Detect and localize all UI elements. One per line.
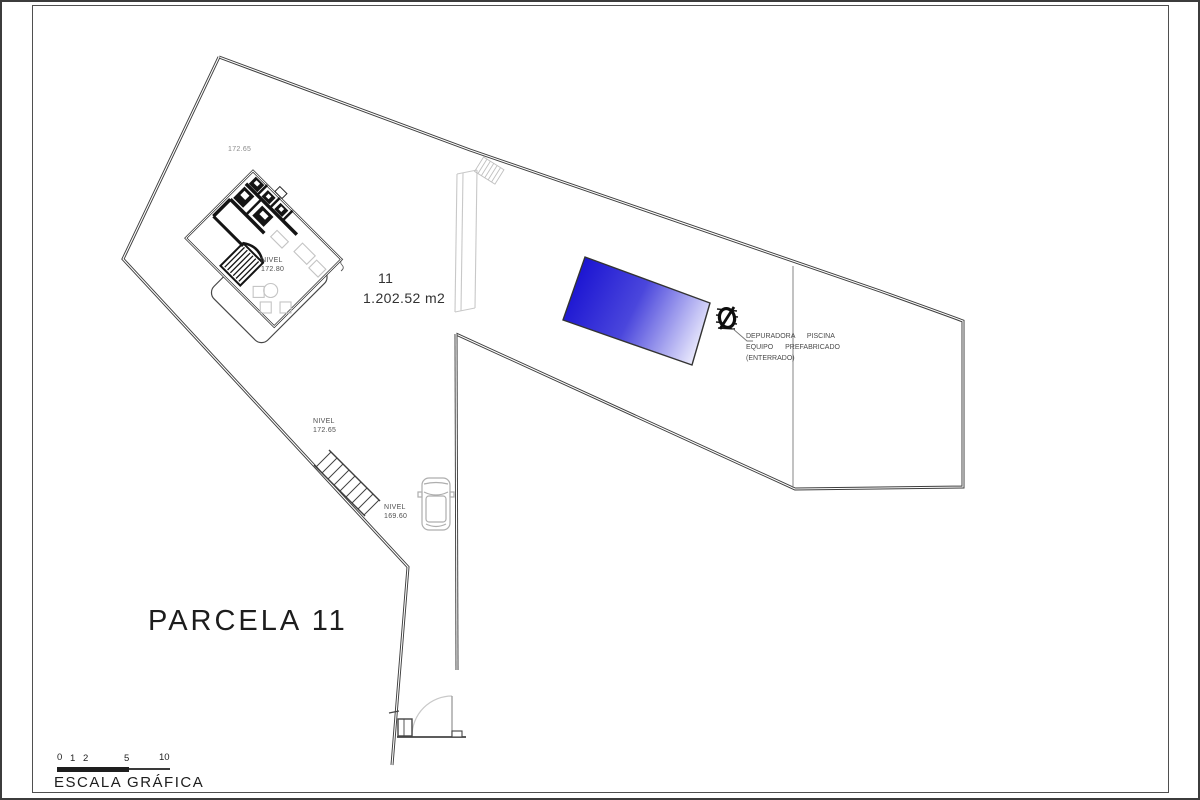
site-plan-drawing (0, 0, 1200, 800)
scale-title: ESCALA GRÁFICA (54, 774, 204, 791)
swimming-pool (563, 257, 710, 365)
parcel-area-label: 1.202.52 m2 (363, 289, 445, 307)
parcel-boundary (123, 57, 963, 765)
scale-tick-5: 5 (124, 753, 129, 764)
mid-level-word: NIVEL (313, 417, 336, 426)
pump-note-line2: EQUIPO PREFABRICADO (746, 343, 840, 354)
pump-note-line3: (ENTERRADO) (746, 354, 840, 365)
door-swing-icon (412, 696, 452, 736)
house-level-label: NIVEL 172.80 (261, 256, 284, 274)
house-level-word: NIVEL (261, 256, 284, 265)
parcel-number-label: 11 (378, 269, 393, 287)
elevation-label: 172.65 (228, 145, 251, 154)
site-plan-sheet: 172.65 NIVEL 172.80 11 1.202.52 m2 DEPUR… (0, 0, 1200, 800)
parcel-title: PARCELA 11 (148, 603, 348, 641)
mid-level-value: 172.65 (313, 426, 336, 435)
garage-level-value: 169.60 (384, 512, 407, 521)
scale-tick-2: 2 (83, 753, 88, 764)
pump-note: DEPURADORA PISCINA EQUIPO PREFABRICADO (… (746, 332, 840, 364)
scale-tick-1: 1 (70, 753, 75, 764)
gate-pillar (398, 719, 412, 736)
garage-level-word: NIVEL (384, 503, 407, 512)
scale-bar-segment-solid (57, 767, 129, 772)
house-level-value: 172.80 (261, 265, 284, 274)
scale-bar-segment-thin (129, 768, 170, 770)
retaining-wall (455, 170, 477, 312)
entrance-gate (389, 696, 466, 737)
car-icon (418, 478, 454, 530)
pump-icon (716, 307, 738, 329)
scale-tick-0: 0 (57, 752, 62, 763)
garage-level-label: NIVEL 169.60 (384, 503, 407, 521)
scale-tick-10: 10 (159, 752, 170, 763)
driveway-stairs-icon (314, 450, 380, 516)
detail-squiggle (341, 259, 344, 271)
mid-level-label: NIVEL 172.65 (313, 417, 336, 435)
pump-note-line1: DEPURADORA PISCINA (746, 332, 840, 343)
